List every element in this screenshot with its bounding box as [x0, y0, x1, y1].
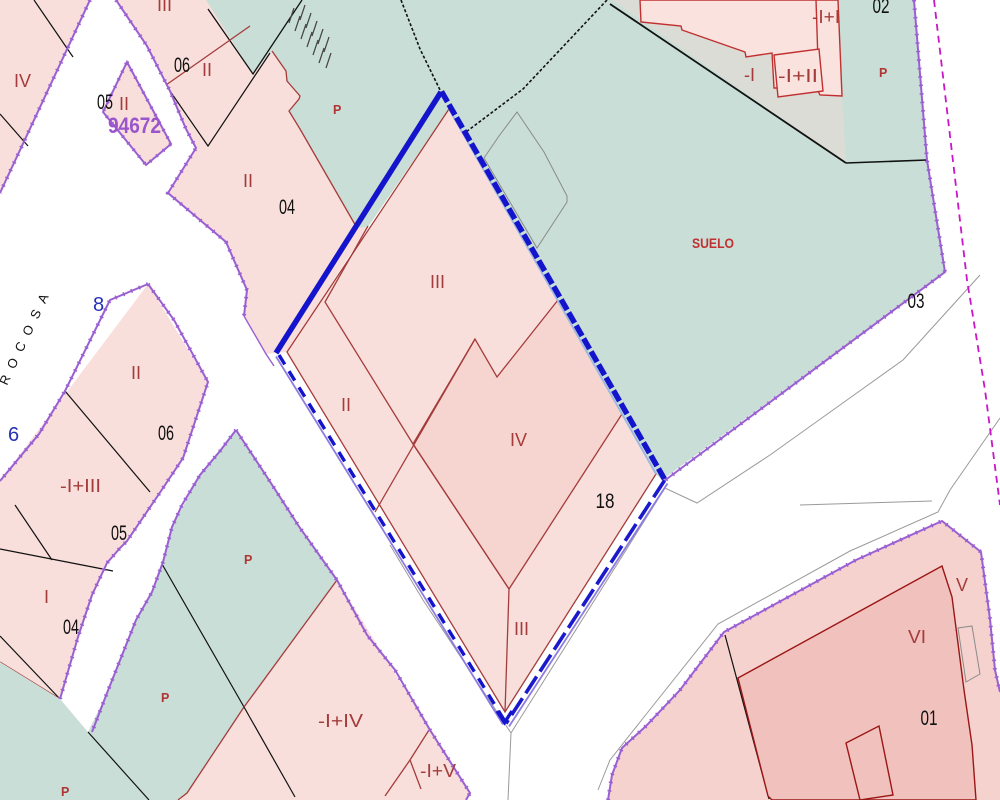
svg-text:-I+III: -I+III — [60, 476, 101, 496]
svg-text:III: III — [514, 619, 529, 639]
svg-text:VI: VI — [908, 627, 926, 647]
svg-text:IV: IV — [14, 71, 31, 91]
svg-text:03: 03 — [908, 290, 925, 313]
svg-text:-I+V: -I+V — [420, 761, 456, 781]
svg-text:P: P — [333, 103, 341, 117]
svg-text:05: 05 — [97, 91, 113, 114]
svg-text:I: I — [44, 587, 49, 607]
svg-text:05: 05 — [111, 522, 127, 545]
svg-text:8: 8 — [93, 294, 104, 316]
svg-text:P: P — [161, 691, 169, 705]
svg-text:II: II — [131, 363, 141, 383]
svg-text:01: 01 — [921, 707, 938, 730]
svg-text:P: P — [61, 785, 69, 799]
svg-text:-I+II: -I+II — [778, 66, 818, 86]
svg-text:02: 02 — [873, 0, 890, 18]
svg-text:06: 06 — [158, 422, 174, 445]
svg-text:6: 6 — [8, 424, 19, 446]
svg-text:III: III — [430, 272, 445, 292]
svg-text:-I: -I — [744, 65, 755, 85]
svg-text:-I+IV: -I+IV — [318, 711, 363, 731]
svg-text:V: V — [956, 575, 968, 595]
svg-text:P: P — [879, 66, 887, 80]
svg-text:06: 06 — [174, 54, 190, 77]
svg-text:III: III — [157, 0, 172, 15]
svg-text:II: II — [119, 94, 129, 114]
svg-text:II: II — [341, 395, 351, 415]
svg-text:94672: 94672 — [108, 113, 161, 138]
svg-text:-I+I: -I+I — [812, 7, 840, 27]
svg-text:SUELO: SUELO — [692, 235, 734, 251]
svg-text:P: P — [244, 553, 252, 567]
svg-text:04: 04 — [279, 196, 295, 219]
svg-text:18: 18 — [596, 490, 615, 513]
svg-text:II: II — [202, 60, 212, 80]
svg-text:IV: IV — [510, 430, 527, 450]
svg-text:04: 04 — [63, 616, 79, 639]
svg-text:II: II — [243, 171, 253, 191]
